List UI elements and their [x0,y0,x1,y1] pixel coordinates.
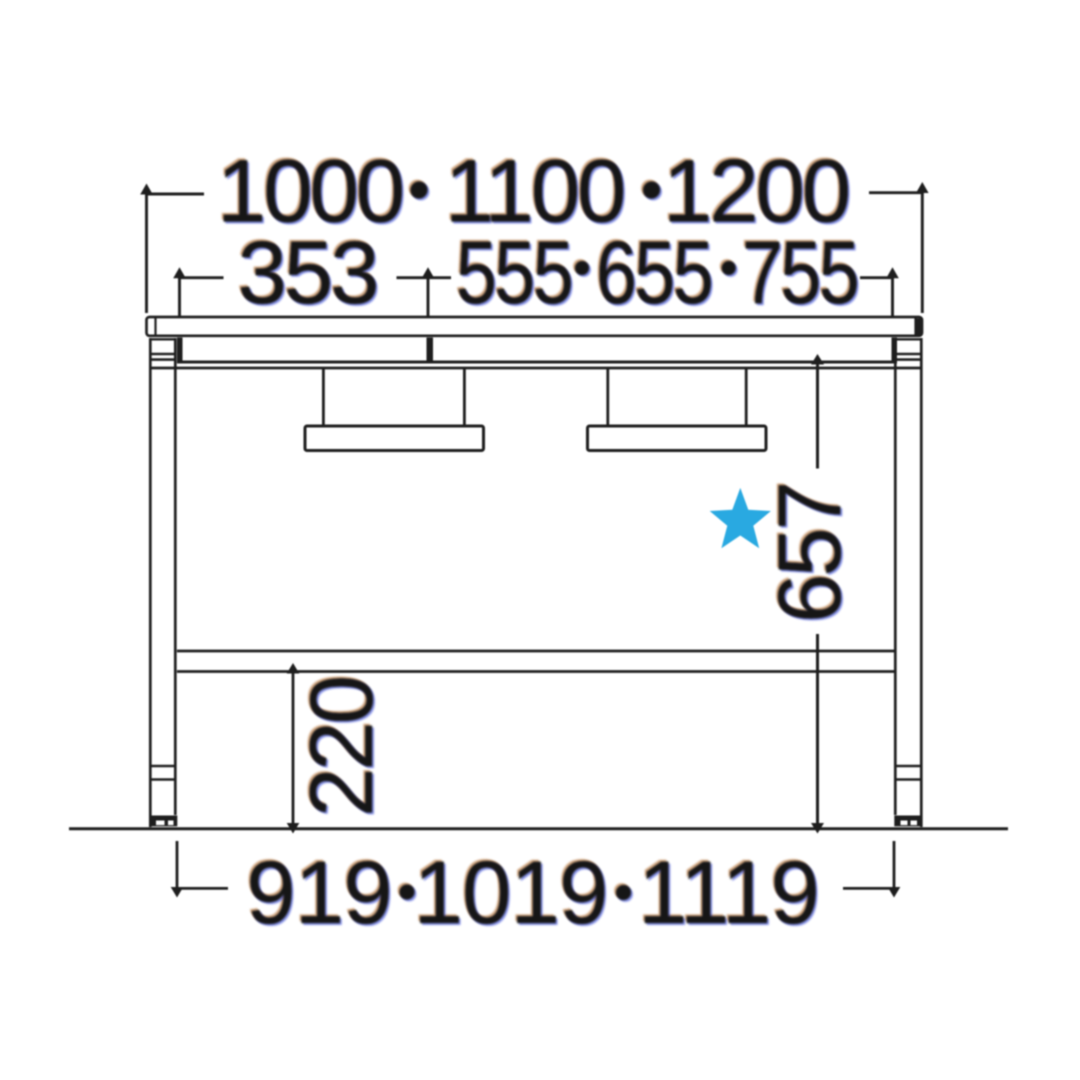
svg-text:1019: 1019 [414,842,608,942]
svg-text:220: 220 [291,677,391,817]
svg-text:1119: 1119 [638,842,819,942]
svg-text:657: 657 [759,484,859,623]
svg-text:655: 655 [596,224,712,323]
svg-text:919: 919 [246,842,392,942]
svg-text:755: 755 [742,224,858,323]
svg-text:555: 555 [456,224,572,323]
svg-text:353: 353 [238,222,377,322]
